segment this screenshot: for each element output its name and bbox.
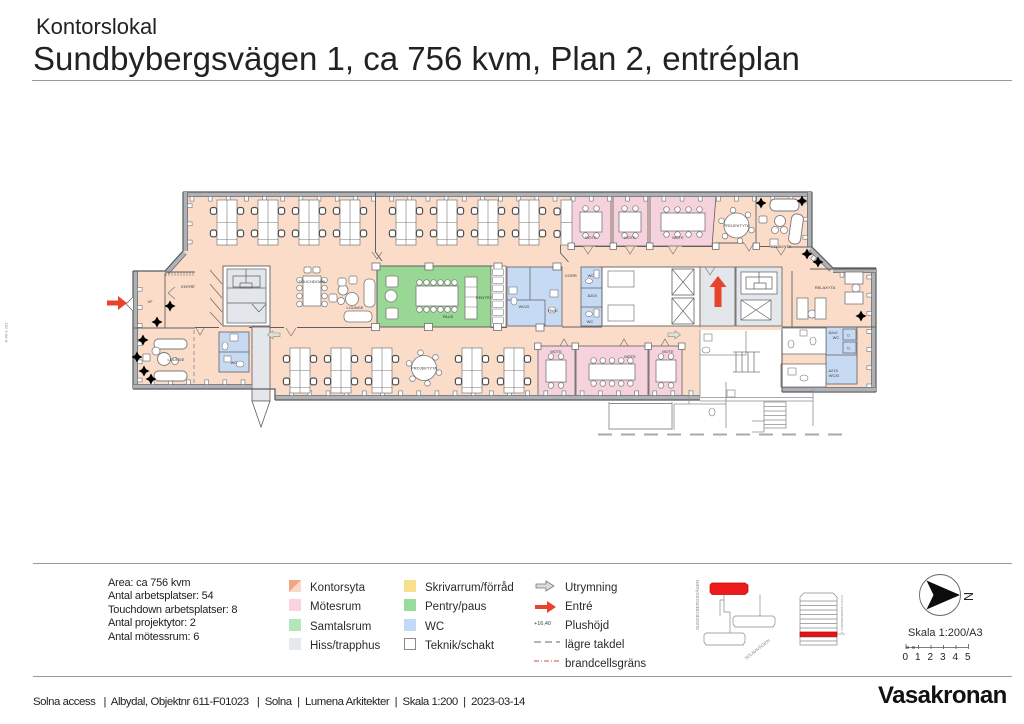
svg-text:PLAN 2 SUNDBYBERGSV 1: PLAN 2 SUNDBYBERGSV 1 (840, 595, 844, 634)
svg-text:SOLNAVÄGEN: SOLNAVÄGEN (743, 637, 771, 661)
svg-text:0: 0 (903, 652, 909, 663)
svg-text:WC: WC (588, 273, 595, 278)
svg-text:A2x2: A2x2 (828, 330, 838, 335)
svg-text:D.: D. (847, 334, 850, 338)
svg-text:SUNDBYBERGSVÄGEN: SUNDBYBERGSVÄGEN (694, 580, 700, 630)
svg-text:PROJEKTYTA: PROJEKTYTA (724, 223, 750, 228)
svg-text:MÖTE: MÖTE (585, 235, 597, 240)
svg-text:N: N (961, 592, 975, 601)
svg-text:TOUCHDOWN: TOUCHDOWN (299, 279, 326, 284)
svg-text:LOUNGE: LOUNGE (347, 305, 364, 310)
svg-text:WC: WC (587, 319, 594, 324)
svg-text:VF: VF (147, 299, 153, 304)
svg-text:A204: A204 (587, 293, 597, 298)
svg-text:KORR: KORR (565, 273, 577, 278)
svg-text:MÖTE: MÖTE (672, 235, 684, 240)
svg-text:3: 3 (940, 652, 946, 663)
svg-text:+16,40: +16,40 (534, 621, 551, 627)
svg-text:WC: WC (833, 335, 840, 340)
svg-text:5: 5 (965, 652, 971, 663)
svg-text:WC: WC (231, 360, 238, 365)
svg-text:MÖTE: MÖTE (624, 235, 636, 240)
svg-text:PAUS: PAUS (443, 314, 454, 319)
svg-text:RWC: RWC (548, 308, 558, 313)
svg-text:MÖTE: MÖTE (550, 349, 562, 354)
svg-text:4: 4 (953, 652, 959, 663)
svg-text:WC/D: WC/D (519, 304, 530, 309)
svg-text:LOUNGE: LOUNGE (168, 357, 185, 362)
svg-text:PROJEKTYTA: PROJEKTYTA (411, 366, 437, 371)
svg-text:D.: D. (847, 347, 850, 351)
svg-text:RELAXYTA: RELAXYTA (771, 244, 792, 249)
svg-text:MÖTE: MÖTE (624, 354, 636, 359)
svg-text:WC/D: WC/D (829, 373, 840, 378)
svg-text:RELAXYTA: RELAXYTA (815, 285, 836, 290)
svg-text:MÖTE: MÖTE (662, 349, 674, 354)
svg-text:2: 2 (928, 652, 934, 663)
svg-text:1: 1 (915, 652, 921, 663)
svg-text:ENTRÉ: ENTRÉ (181, 284, 195, 289)
svg-text:PENTRY: PENTRY (476, 295, 492, 300)
